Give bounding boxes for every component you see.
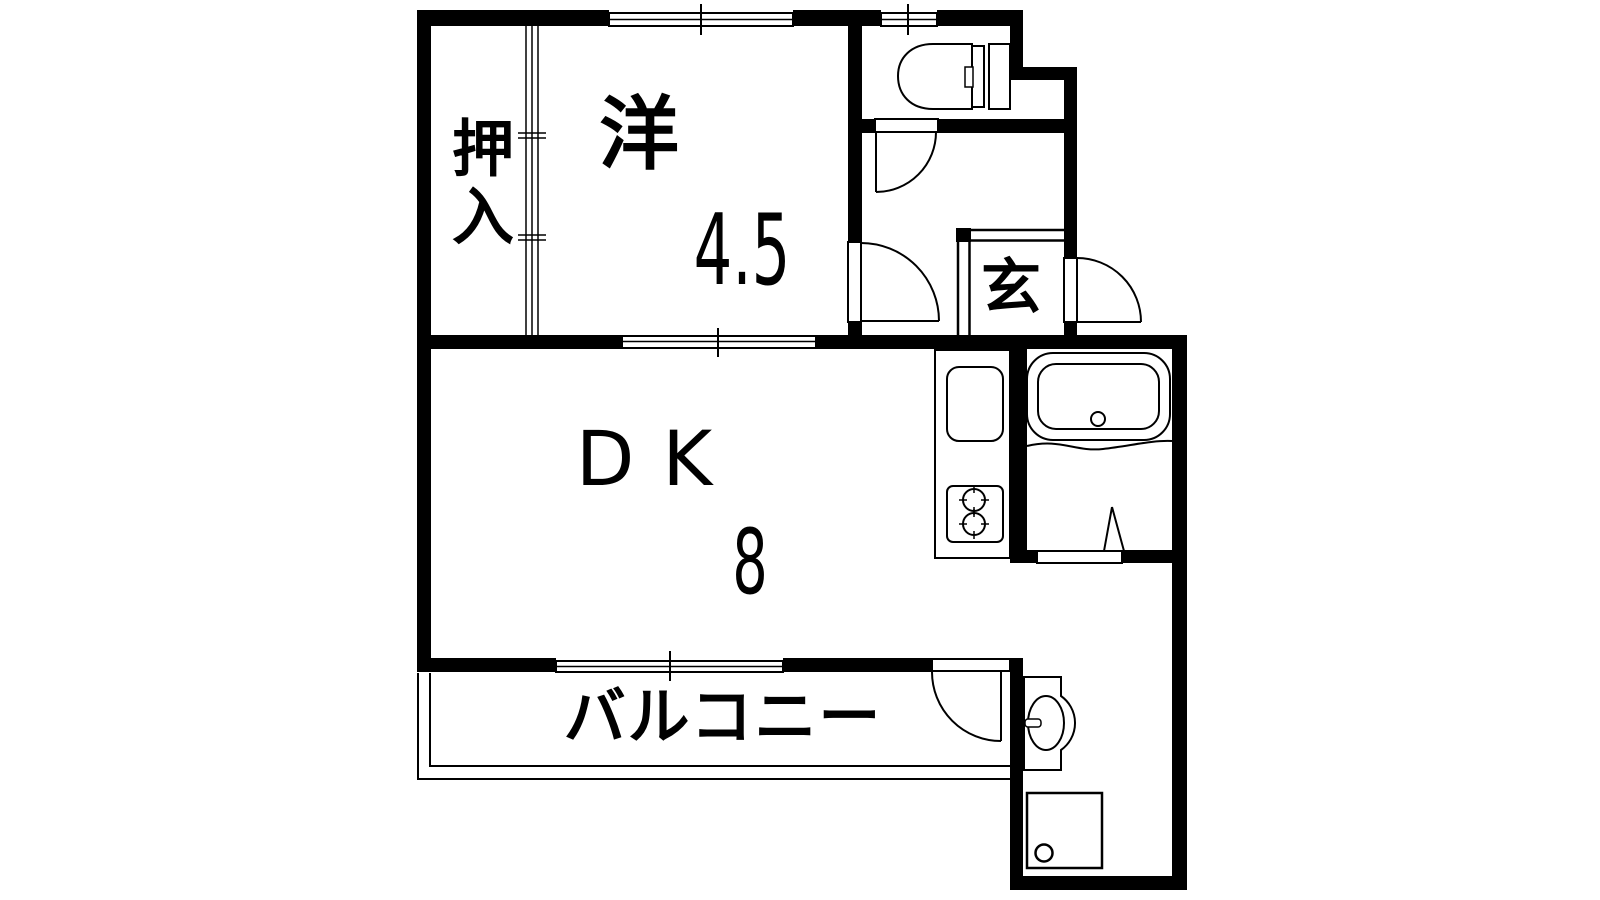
label-dining-kitchen-size: 8 — [732, 518, 768, 608]
wall-bath-bottom-left — [1010, 550, 1037, 563]
door-frame — [1064, 258, 1077, 322]
folding-door-bath — [1037, 507, 1124, 563]
label-closet: 押入 — [446, 116, 508, 252]
window-balcony — [556, 651, 783, 681]
wall-toilet-bottom-left — [848, 119, 875, 133]
wall-step — [1010, 67, 1077, 80]
door-laundry — [932, 659, 1010, 741]
wall-top-left — [417, 10, 609, 26]
label-western-room-size: 4.5 — [694, 202, 791, 300]
wall-washroom-bottom — [1010, 876, 1187, 890]
wall-top-right — [937, 10, 1023, 26]
step-post — [956, 228, 971, 242]
toilet-bowl — [898, 44, 972, 109]
wall-bath-bottom-right — [1122, 550, 1172, 563]
wall-mid-right — [815, 335, 1187, 349]
door-toilet — [875, 119, 938, 192]
wall-western-east-upper — [848, 26, 862, 242]
toilet-handle — [965, 67, 973, 87]
wall-washroom-left — [1010, 658, 1023, 890]
bathtub-drain — [1091, 412, 1105, 426]
wall-toilet-bottom-right — [938, 119, 1077, 133]
folding-door-mark — [1104, 507, 1124, 551]
wall-dk-bottom-left — [417, 658, 556, 672]
wall-top-mid — [793, 10, 881, 26]
wall-right-outer — [1172, 335, 1187, 890]
door-entrance — [1064, 258, 1141, 322]
wall-kitchen-bath — [1010, 349, 1027, 563]
door-swing-arc — [876, 132, 936, 192]
bathtub-icon — [1027, 353, 1172, 449]
wall-right-upper — [1064, 80, 1077, 258]
sliding-door-western-dk — [622, 328, 816, 357]
door-frame — [848, 242, 861, 322]
wall-mid-left — [417, 335, 623, 349]
window-western-room — [609, 4, 793, 35]
label-western-room: 洋 — [599, 95, 679, 175]
wall-western-east-lower — [848, 322, 862, 336]
label-entrance: 玄 — [981, 258, 1041, 318]
door-frame — [1037, 551, 1122, 563]
toilet-fixture-icon — [898, 44, 1010, 109]
door-frame — [875, 119, 938, 132]
wall-right-below-door — [1064, 322, 1077, 336]
toilet-tank — [989, 44, 1010, 109]
floor-plan-drawing — [0, 0, 1600, 900]
door-swing-arc — [932, 672, 1001, 741]
pan-drain — [1036, 845, 1053, 862]
window-toilet — [881, 4, 937, 35]
washbasin-icon — [1024, 677, 1075, 770]
toilet-cistern — [972, 46, 984, 107]
kitchen-counter-icon — [935, 350, 1010, 558]
kitchen-sink-icon — [947, 367, 1003, 441]
door-swing-arc — [1077, 258, 1141, 322]
floor-plan-page: 押入 洋 4.5 DK 8 玄 バルコニー — [0, 0, 1600, 900]
door-frame — [932, 659, 1010, 671]
door-western-room — [848, 242, 939, 322]
washing-machine-pan-icon — [1027, 793, 1102, 868]
wall-dk-bottom-mid — [783, 658, 932, 672]
closet-partition-icon — [518, 26, 546, 335]
label-balcony: バルコニー — [564, 686, 883, 748]
door-swing-arc — [861, 243, 939, 321]
bath-floor-line — [1027, 441, 1172, 450]
washbasin-faucet — [1025, 719, 1041, 727]
label-dining-kitchen: DK — [576, 421, 740, 497]
